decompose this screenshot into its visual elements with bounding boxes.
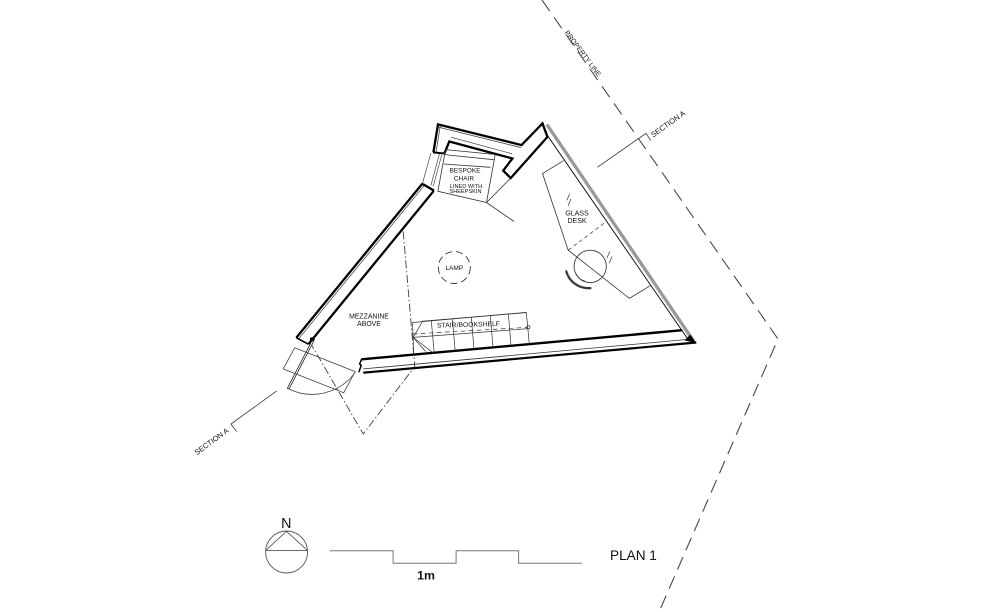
svg-text:1m: 1m xyxy=(417,569,435,583)
svg-text:MEZZANINE: MEZZANINE xyxy=(349,314,389,321)
svg-text:BESPOKE: BESPOKE xyxy=(449,168,481,175)
svg-text:SHEEPSKIN: SHEEPSKIN xyxy=(449,189,481,195)
svg-text:N: N xyxy=(281,516,291,532)
svg-text:DESK: DESK xyxy=(567,218,586,225)
svg-text:ABOVE: ABOVE xyxy=(357,321,381,328)
svg-text:GLASS: GLASS xyxy=(565,211,589,218)
svg-text:PLAN 1: PLAN 1 xyxy=(610,548,657,563)
svg-text:LAMP: LAMP xyxy=(445,265,463,272)
svg-text:CHAIR: CHAIR xyxy=(454,175,475,182)
